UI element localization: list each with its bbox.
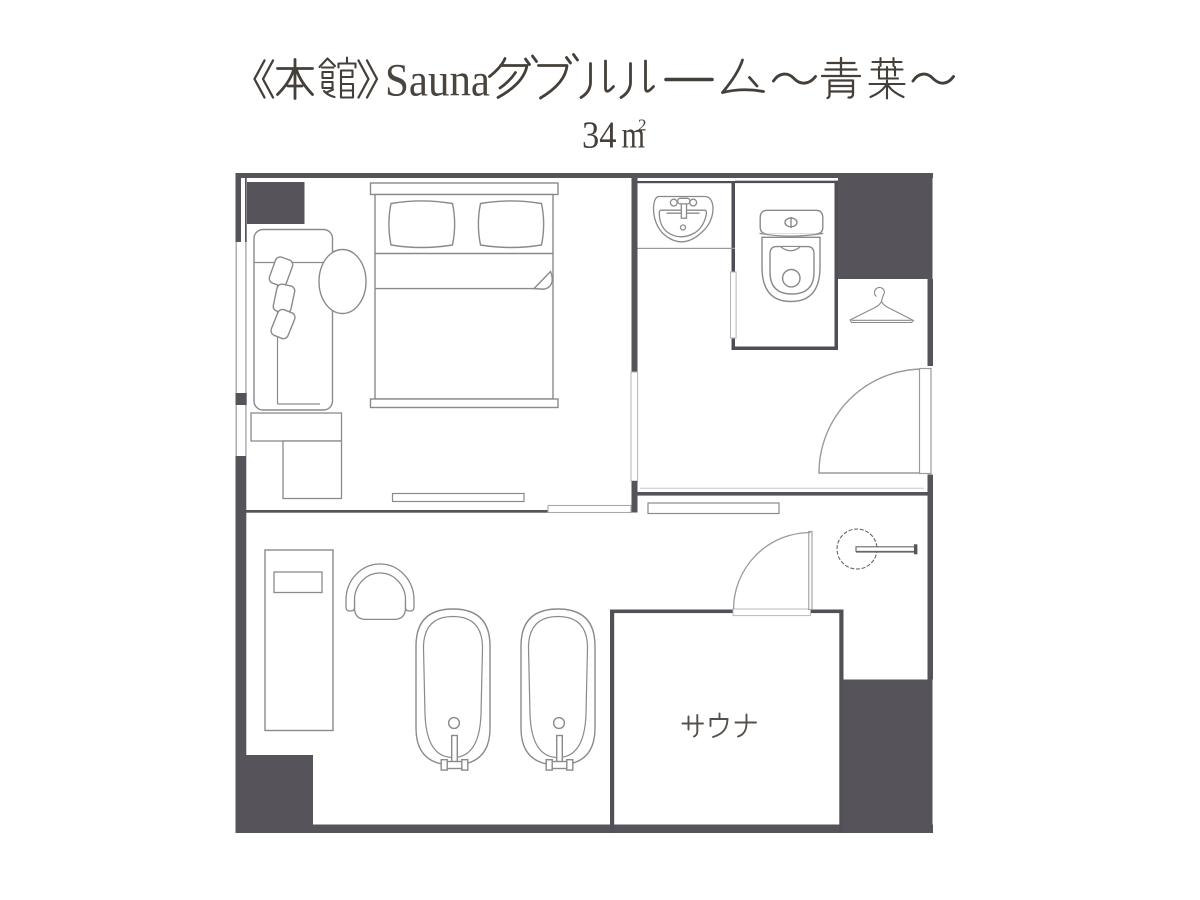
svg-text:34: 34	[582, 115, 617, 157]
svg-text:Sauna: Sauna	[385, 55, 490, 107]
svg-text:2: 2	[638, 116, 647, 135]
